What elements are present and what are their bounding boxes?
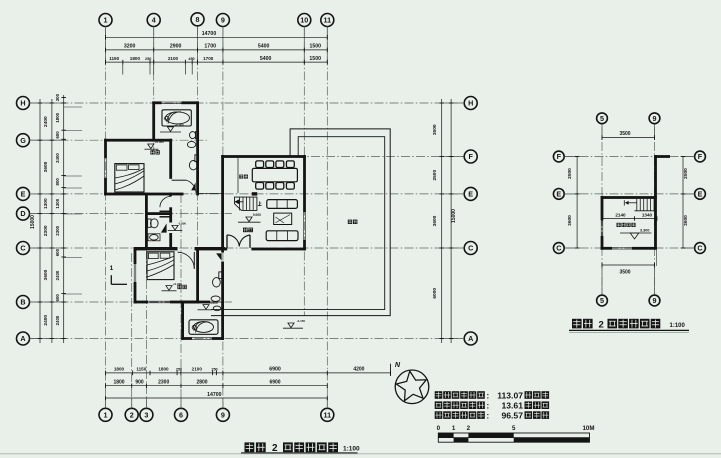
svg-text:3600: 3600 xyxy=(432,215,438,226)
svg-text:1700: 1700 xyxy=(204,44,216,50)
svg-text:2500: 2500 xyxy=(683,168,689,179)
svg-text:H: H xyxy=(468,99,473,108)
svg-text:F: F xyxy=(557,152,562,161)
svg-text:+0.000: +0.000 xyxy=(155,140,165,144)
svg-text:2400: 2400 xyxy=(55,153,60,163)
svg-text:1:100: 1:100 xyxy=(343,446,360,453)
svg-text:G: G xyxy=(20,136,26,145)
svg-text:D: D xyxy=(20,209,25,218)
svg-text:1500: 1500 xyxy=(310,44,322,50)
svg-text:15000: 15000 xyxy=(30,215,36,229)
svg-text:250: 250 xyxy=(247,229,252,233)
svg-text:1500: 1500 xyxy=(309,56,321,62)
svg-text:C: C xyxy=(556,244,561,253)
svg-text:3200: 3200 xyxy=(124,44,136,50)
svg-text:11: 11 xyxy=(323,410,331,419)
svg-text:3500: 3500 xyxy=(619,131,630,137)
svg-text:E: E xyxy=(468,190,473,199)
svg-text:F: F xyxy=(469,152,474,161)
svg-text:E: E xyxy=(556,190,561,199)
svg-text:600: 600 xyxy=(55,131,60,139)
svg-text:1800: 1800 xyxy=(55,112,60,122)
svg-text:6900: 6900 xyxy=(269,380,280,386)
svg-text:2100: 2100 xyxy=(192,367,203,372)
svg-text:250: 250 xyxy=(211,368,217,372)
svg-text:4200: 4200 xyxy=(353,367,364,373)
svg-text:F: F xyxy=(698,152,703,161)
svg-text:2: 2 xyxy=(467,425,471,432)
svg-text:E: E xyxy=(698,190,703,199)
svg-text:1:100: 1:100 xyxy=(670,323,686,329)
svg-text:1800: 1800 xyxy=(113,380,124,386)
svg-text:0: 0 xyxy=(437,425,441,432)
svg-text:0.000: 0.000 xyxy=(179,222,187,226)
svg-text:1150: 1150 xyxy=(136,367,146,372)
svg-text:15000: 15000 xyxy=(451,209,457,223)
svg-text:2: 2 xyxy=(130,410,134,419)
svg-text:B: B xyxy=(20,298,25,307)
svg-text::: : xyxy=(487,412,490,421)
svg-text:2300: 2300 xyxy=(158,380,169,386)
svg-text:1700: 1700 xyxy=(203,56,214,61)
svg-text:A: A xyxy=(468,334,473,343)
svg-text:3500: 3500 xyxy=(619,269,630,275)
svg-text:2500: 2500 xyxy=(432,170,438,181)
svg-text:5400: 5400 xyxy=(258,44,270,50)
svg-text:2900: 2900 xyxy=(170,44,182,50)
svg-text:9: 9 xyxy=(221,16,225,25)
svg-text::: : xyxy=(487,402,490,411)
svg-text:-0.600: -0.600 xyxy=(209,301,218,305)
svg-text:3500: 3500 xyxy=(432,124,438,135)
svg-text:C: C xyxy=(468,244,473,253)
svg-text:250: 250 xyxy=(176,368,182,372)
svg-text:6: 6 xyxy=(179,410,183,419)
svg-text:2800: 2800 xyxy=(196,380,207,386)
svg-text:2300: 2300 xyxy=(43,225,49,236)
svg-text:10: 10 xyxy=(300,16,308,25)
svg-text:2300: 2300 xyxy=(55,225,60,235)
svg-text:2400: 2400 xyxy=(55,315,60,325)
svg-text:0.000: 0.000 xyxy=(253,213,261,217)
svg-text:11: 11 xyxy=(323,16,331,25)
svg-text:E: E xyxy=(21,190,26,199)
svg-text:2400: 2400 xyxy=(43,315,49,326)
svg-text:1: 1 xyxy=(452,425,456,432)
svg-text:14700: 14700 xyxy=(202,31,217,37)
svg-text:113.07: 113.07 xyxy=(497,390,523,400)
svg-text:1300: 1300 xyxy=(43,198,49,209)
svg-text:3600: 3600 xyxy=(43,161,49,172)
svg-text:5: 5 xyxy=(600,296,604,305)
svg-text:250: 250 xyxy=(145,57,151,61)
svg-text:3600: 3600 xyxy=(43,269,49,280)
svg-text:10M: 10M xyxy=(582,425,594,432)
svg-text:3.300: 3.300 xyxy=(640,229,650,233)
svg-text:1: 1 xyxy=(110,265,114,272)
svg-text:A: A xyxy=(20,334,25,343)
svg-text:C: C xyxy=(697,244,702,253)
svg-text:1300: 1300 xyxy=(55,198,60,208)
svg-text:9: 9 xyxy=(653,296,657,305)
svg-text:2140: 2140 xyxy=(615,213,626,218)
svg-text:900: 900 xyxy=(135,380,144,386)
svg-text:600: 600 xyxy=(55,294,60,302)
svg-text:H: H xyxy=(20,99,25,108)
svg-text:300: 300 xyxy=(55,93,60,101)
svg-text:1340: 1340 xyxy=(642,213,653,218)
svg-text:1: 1 xyxy=(104,16,108,25)
svg-text:3600: 3600 xyxy=(567,215,573,226)
svg-text:C: C xyxy=(20,244,25,253)
svg-text:N: N xyxy=(395,360,401,369)
svg-text:8: 8 xyxy=(196,15,200,24)
svg-text:1800: 1800 xyxy=(114,367,125,372)
svg-text:6000: 6000 xyxy=(432,288,438,299)
svg-text:600: 600 xyxy=(55,248,60,256)
svg-text:450: 450 xyxy=(188,57,194,61)
svg-text:2500: 2500 xyxy=(567,168,573,179)
svg-text:1800: 1800 xyxy=(158,367,169,372)
svg-text:96.57: 96.57 xyxy=(501,411,523,421)
svg-text:2: 2 xyxy=(599,320,604,331)
svg-text:5: 5 xyxy=(512,425,516,432)
svg-text:-0.150: -0.150 xyxy=(297,319,306,323)
svg-text:9: 9 xyxy=(221,410,225,419)
svg-text:800: 800 xyxy=(55,178,60,186)
svg-text:3600: 3600 xyxy=(683,215,689,226)
svg-text::: : xyxy=(487,391,490,400)
svg-text:14700: 14700 xyxy=(207,392,222,398)
svg-text:+0.000: +0.000 xyxy=(175,123,185,127)
svg-text:3: 3 xyxy=(144,410,148,419)
svg-text:5: 5 xyxy=(600,114,604,123)
svg-text:1800: 1800 xyxy=(130,56,141,61)
svg-text:4: 4 xyxy=(152,16,156,25)
svg-text:1: 1 xyxy=(104,410,108,419)
svg-text:1150: 1150 xyxy=(109,56,119,61)
svg-text:9: 9 xyxy=(653,114,657,123)
svg-text:5400: 5400 xyxy=(260,56,272,62)
svg-text:2400: 2400 xyxy=(43,116,49,127)
svg-text:13.61: 13.61 xyxy=(501,401,523,411)
svg-text:2100: 2100 xyxy=(168,56,179,61)
svg-text:2400: 2400 xyxy=(55,270,60,280)
svg-text:6900: 6900 xyxy=(269,367,281,373)
